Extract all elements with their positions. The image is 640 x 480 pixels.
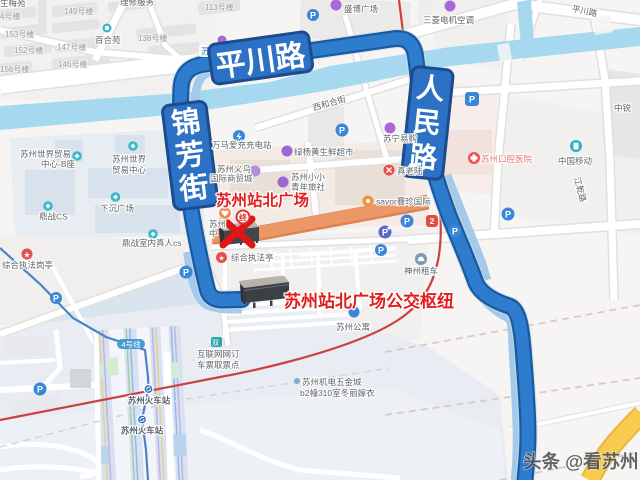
svg-text:鼎战CS: 鼎战CS xyxy=(39,212,68,222)
svg-text:苏州站北广场公交枢纽: 苏州站北广场公交枢纽 xyxy=(284,291,454,311)
svg-text:双: 双 xyxy=(212,339,219,347)
svg-text:113号楼: 113号楼 xyxy=(205,2,234,12)
svg-text:头条 @看苏州: 头条 @看苏州 xyxy=(523,451,639,472)
svg-text:P: P xyxy=(378,246,384,256)
svg-text:苏州世界贸易: 苏州世界贸易 xyxy=(20,149,71,159)
svg-text:中国移动: 中国移动 xyxy=(558,156,593,166)
svg-text:万马爱充充电站: 万马爱充充电站 xyxy=(212,140,272,150)
svg-text:苏州: 苏州 xyxy=(209,219,226,229)
svg-text:P: P xyxy=(505,210,511,220)
svg-text:苏宁易购: 苏宁易购 xyxy=(383,134,417,144)
svg-text:绿杨黄生鲜超市: 绿杨黄生鲜超市 xyxy=(294,147,354,157)
svg-text:P: P xyxy=(53,294,59,304)
svg-text:146号楼: 146号楼 xyxy=(58,59,87,69)
svg-text:b2幢310室冬丽嫁衣: b2幢310室冬丽嫁衣 xyxy=(300,388,375,398)
svg-text:理修服务: 理修服务 xyxy=(120,0,155,7)
svg-text:人: 人 xyxy=(415,72,446,106)
svg-text:138号楼: 138号楼 xyxy=(138,33,167,43)
svg-text:P: P xyxy=(469,95,475,105)
svg-text:P: P xyxy=(404,217,410,227)
svg-text:苏州公寓: 苏州公寓 xyxy=(336,322,370,332)
svg-text:P: P xyxy=(37,385,43,395)
svg-text:生梅苑: 生梅苑 xyxy=(0,0,26,8)
svg-text:三菱电机空调: 三菱电机空调 xyxy=(423,15,474,25)
svg-text:P: P xyxy=(339,126,345,136)
svg-text:P: P xyxy=(183,268,189,278)
svg-text:147号楼: 147号楼 xyxy=(57,42,86,52)
svg-text:苏州火车站: 苏州火车站 xyxy=(128,396,171,406)
svg-text:国际商贸城: 国际商贸城 xyxy=(210,174,253,184)
svg-text:中心-B座: 中心-B座 xyxy=(41,159,76,169)
svg-text:4号楼: 4号楼 xyxy=(0,11,20,21)
svg-text:P: P xyxy=(310,11,316,21)
svg-text:★: ★ xyxy=(218,255,224,263)
svg-text:终: 终 xyxy=(238,213,248,223)
svg-text:苏州小小: 苏州小小 xyxy=(291,172,326,182)
svg-text:青年旅社: 青年旅社 xyxy=(291,182,326,192)
svg-text:苏州机电五金城: 苏州机电五金城 xyxy=(302,377,362,387)
svg-text:P: P xyxy=(452,227,458,237)
svg-text:苏州站北广场: 苏州站北广场 xyxy=(216,191,309,210)
svg-text:P: P xyxy=(382,228,388,238)
svg-text:苏州义乌: 苏州义乌 xyxy=(217,164,251,174)
svg-text:芳: 芳 xyxy=(174,137,207,173)
svg-text:综合执法岗亭: 综合执法岗亭 xyxy=(2,260,53,270)
svg-text:下沉广场: 下沉广场 xyxy=(100,204,134,214)
svg-text:★: ★ xyxy=(23,251,30,260)
svg-text:156号楼: 156号楼 xyxy=(0,64,29,74)
svg-text:中锐: 中锐 xyxy=(614,103,632,113)
svg-text:互联网网订: 互联网网订 xyxy=(197,349,240,359)
svg-text:4号线: 4号线 xyxy=(121,339,141,349)
svg-text:百合苑: 百合苑 xyxy=(95,35,121,45)
svg-text:贸易中心: 贸易中心 xyxy=(112,165,147,175)
svg-text:152号楼: 152号楼 xyxy=(14,45,43,55)
svg-text:鼎战室内真人cs: 鼎战室内真人cs xyxy=(122,238,182,248)
svg-text:savor賽珍国际: savor賽珍国际 xyxy=(376,197,431,207)
svg-text:149号楼: 149号楼 xyxy=(64,6,93,16)
svg-text:苏州世界: 苏州世界 xyxy=(112,154,147,164)
svg-text:2: 2 xyxy=(430,217,435,226)
svg-text:街: 街 xyxy=(177,169,211,206)
svg-text:车票取票点: 车票取票点 xyxy=(197,360,240,370)
svg-text:锦: 锦 xyxy=(170,105,203,141)
svg-text:苏州火车站: 苏州火车站 xyxy=(121,426,164,436)
svg-text:153号楼: 153号楼 xyxy=(5,29,34,39)
svg-text:神州租车: 神州租车 xyxy=(404,266,438,276)
svg-text:盛博广场: 盛博广场 xyxy=(344,4,378,14)
svg-text:苏州口腔医院: 苏州口腔医院 xyxy=(481,154,533,164)
svg-text:中: 中 xyxy=(209,229,218,239)
svg-text:综合执法亭: 综合执法亭 xyxy=(231,253,274,263)
svg-text:真老陆: 真老陆 xyxy=(397,166,423,176)
